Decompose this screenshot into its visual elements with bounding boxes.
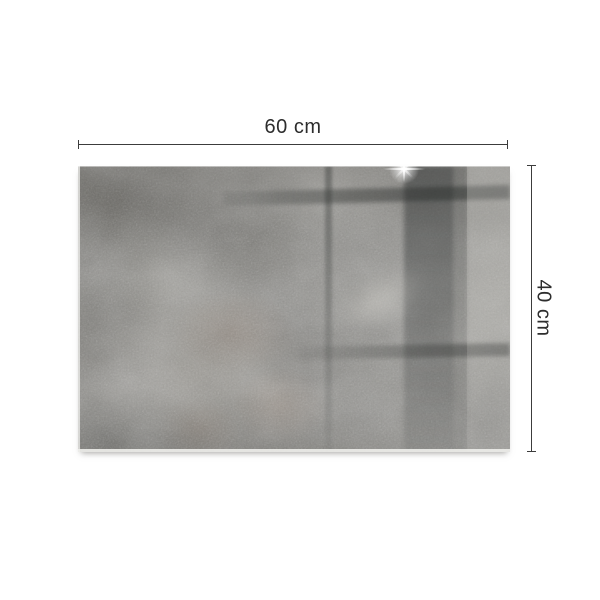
height-dimension-line <box>531 165 532 452</box>
right-light-reflection <box>467 166 510 452</box>
height-dimension-tick-top <box>527 165 536 166</box>
glass-edge-top-highlight <box>78 166 510 167</box>
glass-board-photo <box>78 166 510 452</box>
width-dimension-label: 60 cm <box>78 114 508 140</box>
product-dimension-figure: 60 cm 40 cm <box>0 0 600 600</box>
height-dimension-tick-bottom <box>527 451 536 452</box>
glass-edge-left-highlight <box>78 166 80 452</box>
width-dimension-tick-left <box>78 140 79 149</box>
glass-edge-bottom-highlight <box>78 449 510 452</box>
window-reflection-vertical-edge <box>454 166 467 452</box>
sparkle-ray-vertical <box>403 166 405 182</box>
width-dimension-tick-right <box>507 140 508 149</box>
width-dimension-line <box>78 144 508 145</box>
height-dimension-label: 40 cm <box>532 280 555 337</box>
